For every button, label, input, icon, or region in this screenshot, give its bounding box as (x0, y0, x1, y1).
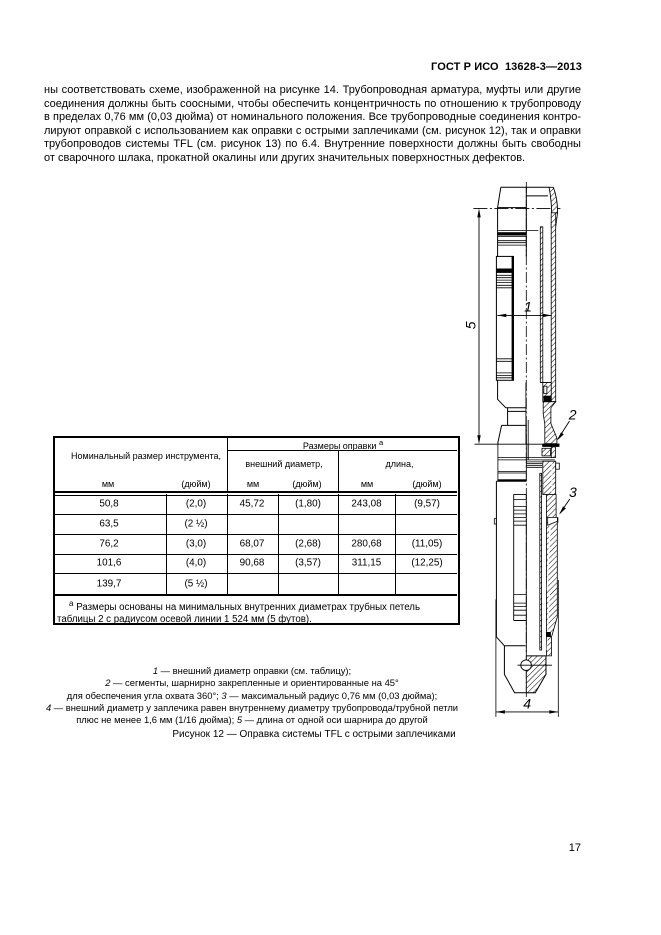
svg-text:2: 2 (568, 406, 577, 422)
svg-text:3: 3 (569, 484, 577, 500)
svg-text:5: 5 (463, 321, 479, 329)
svg-text:4: 4 (523, 696, 531, 712)
svg-text:1: 1 (524, 299, 532, 315)
